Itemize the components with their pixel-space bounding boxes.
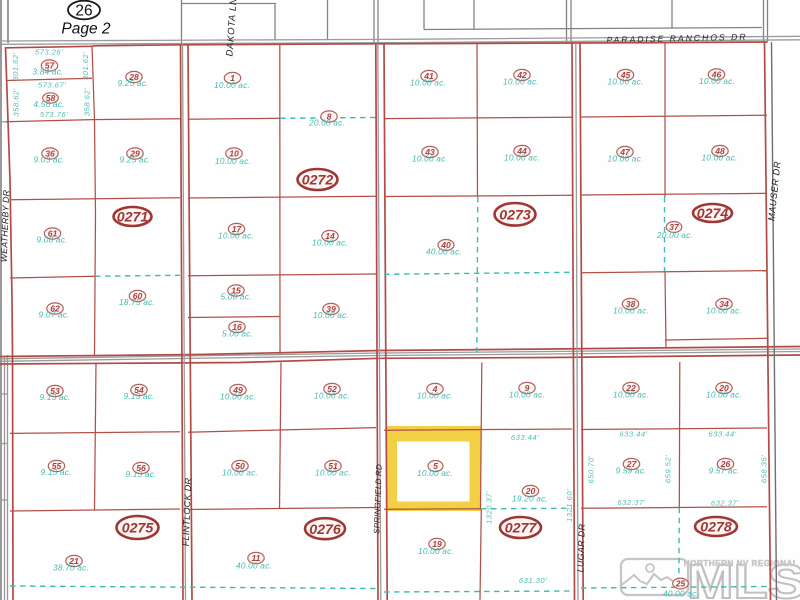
svg-text:10.00 ac.: 10.00 ac. — [504, 153, 540, 163]
svg-text:Page 2: Page 2 — [61, 21, 111, 38]
svg-text:10.00 ac.: 10.00 ac. — [314, 391, 350, 401]
svg-text:633.44': 633.44' — [708, 430, 736, 439]
svg-text:9.03 ac.: 9.03 ac. — [33, 155, 64, 165]
svg-text:40.00 ac.: 40.00 ac. — [663, 589, 699, 599]
svg-text:10.00 ac.: 10.00 ac. — [412, 154, 448, 164]
svg-text:9.57 ac.: 9.57 ac. — [708, 466, 739, 476]
svg-text:10.00 ac.: 10.00 ac. — [315, 468, 351, 478]
svg-text:20.00 ac.: 20.00 ac. — [656, 230, 693, 240]
svg-text:10.00 ac.: 10.00 ac. — [509, 390, 545, 400]
svg-text:10.00 ac.: 10.00 ac. — [699, 76, 735, 86]
svg-text:573.76': 573.76' — [40, 110, 68, 119]
svg-text:9.13 ac.: 9.13 ac. — [40, 467, 71, 477]
svg-text:5.00 ac.: 5.00 ac. — [222, 329, 253, 339]
svg-text:659.52': 659.52' — [664, 455, 673, 483]
svg-text:10.00 ac.: 10.00 ac. — [503, 77, 539, 87]
svg-text:26: 26 — [75, 3, 92, 20]
svg-text:1320.37': 1320.37' — [485, 491, 494, 524]
svg-text:9.25 ac.: 9.25 ac. — [117, 78, 148, 88]
svg-text:WEATHERBY DR: WEATHERBY DR — [0, 189, 11, 262]
svg-text:358.62': 358.62' — [83, 88, 92, 116]
svg-text:0278: 0278 — [700, 520, 732, 536]
svg-text:DAKOTA LN: DAKOTA LN — [224, 0, 239, 57]
svg-text:10.00 ac.: 10.00 ac. — [702, 153, 738, 163]
svg-text:10.00 ac.: 10.00 ac. — [613, 306, 649, 316]
svg-text:10.00 ac.: 10.00 ac. — [312, 238, 348, 248]
svg-text:0274: 0274 — [697, 206, 729, 222]
svg-text:25: 25 — [675, 579, 686, 589]
svg-text:9.13 ac.: 9.13 ac. — [123, 391, 154, 401]
svg-text:3.84 ac.: 3.84 ac. — [32, 67, 63, 77]
svg-text:9.07 ac.: 9.07 ac. — [38, 310, 69, 320]
svg-text:40.00 ac.: 40.00 ac. — [426, 247, 462, 257]
svg-text:632.37': 632.37' — [617, 498, 645, 507]
svg-text:0271: 0271 — [117, 210, 149, 226]
svg-text:10.00 ac.: 10.00 ac. — [220, 392, 256, 402]
svg-text:658.35': 658.35' — [760, 455, 769, 483]
svg-text:19.20 ac.: 19.20 ac. — [512, 494, 548, 504]
svg-text:4.56 ac.: 4.56 ac. — [33, 99, 64, 109]
svg-text:0273: 0273 — [499, 208, 531, 224]
svg-text:0272: 0272 — [302, 173, 334, 189]
svg-text:10.00 ac.: 10.00 ac. — [417, 391, 453, 401]
svg-text:SPRINGFIELD RD: SPRINGFIELD RD — [372, 464, 383, 534]
svg-text:20.00 ac.: 20.00 ac. — [308, 118, 345, 128]
svg-text:0277: 0277 — [505, 521, 538, 537]
svg-text:633.44': 633.44' — [511, 433, 539, 442]
svg-text:10.00 ac.: 10.00 ac. — [222, 468, 258, 478]
svg-text:10.00 ac.: 10.00 ac. — [410, 78, 446, 88]
svg-text:10.00 ac.: 10.00 ac. — [417, 468, 453, 478]
svg-text:10.00 ac.: 10.00 ac. — [608, 77, 644, 87]
svg-text:10.00 ac.: 10.00 ac. — [706, 390, 742, 400]
svg-text:0275: 0275 — [122, 521, 155, 537]
svg-text:650.70': 650.70' — [587, 455, 596, 483]
svg-text:10.00 ac.: 10.00 ac. — [613, 390, 649, 400]
svg-text:633.44': 633.44' — [619, 430, 647, 439]
svg-text:1321.60': 1321.60' — [565, 489, 574, 522]
svg-text:LUGAR DR: LUGAR DR — [575, 523, 587, 572]
svg-text:0276: 0276 — [309, 522, 341, 538]
svg-text:10.00 ac.: 10.00 ac. — [218, 231, 254, 241]
svg-text:573.26': 573.26' — [35, 48, 63, 57]
svg-text:632.37': 632.37' — [711, 499, 739, 508]
svg-text:5.00 ac.: 5.00 ac. — [220, 292, 251, 302]
svg-text:573.67': 573.67' — [38, 81, 66, 90]
svg-text:9.08 ac.: 9.08 ac. — [36, 235, 67, 245]
svg-text:10.00 ac.: 10.00 ac. — [313, 310, 349, 320]
svg-text:9.13 ac.: 9.13 ac. — [39, 392, 70, 402]
svg-text:10.00 ac.: 10.00 ac. — [706, 306, 742, 316]
svg-text:9.25 ac.: 9.25 ac. — [119, 155, 150, 165]
svg-text:38.70 ac.: 38.70 ac. — [53, 563, 89, 573]
svg-text:10.00 ac.: 10.00 ac. — [608, 154, 644, 164]
svg-text:MAUSER DR: MAUSER DR — [766, 160, 782, 221]
svg-text:631.30': 631.30' — [519, 576, 547, 585]
svg-text:10.00 ac.: 10.00 ac. — [214, 80, 250, 90]
svg-text:NORTHERN NV REGIONAL: NORTHERN NV REGIONAL — [684, 559, 799, 568]
svg-text:358.62': 358.62' — [12, 88, 21, 116]
svg-text:9.13 ac.: 9.13 ac. — [125, 469, 156, 479]
svg-text:10.00 ac.: 10.00 ac. — [215, 156, 251, 166]
svg-text:10.00 ac.: 10.00 ac. — [418, 546, 454, 556]
svg-text:301.62': 301.62' — [11, 52, 20, 80]
svg-text:18.75 ac.: 18.75 ac. — [119, 297, 155, 307]
svg-text:9.59 ac.: 9.59 ac. — [615, 466, 646, 476]
svg-text:301.62': 301.62' — [81, 52, 90, 80]
svg-text:40.00 ac.: 40.00 ac. — [236, 561, 272, 571]
